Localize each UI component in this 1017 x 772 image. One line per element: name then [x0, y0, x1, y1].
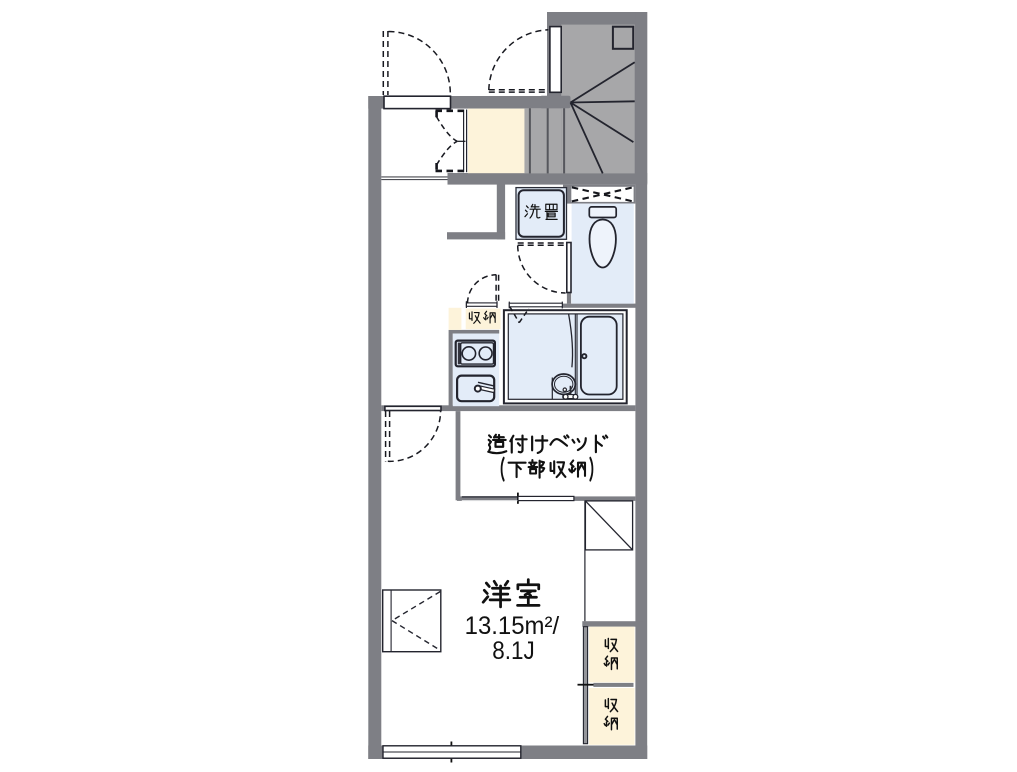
svg-text:13.15m²/: 13.15m²/ [465, 612, 560, 640]
svg-text:8.1J: 8.1J [492, 637, 534, 665]
